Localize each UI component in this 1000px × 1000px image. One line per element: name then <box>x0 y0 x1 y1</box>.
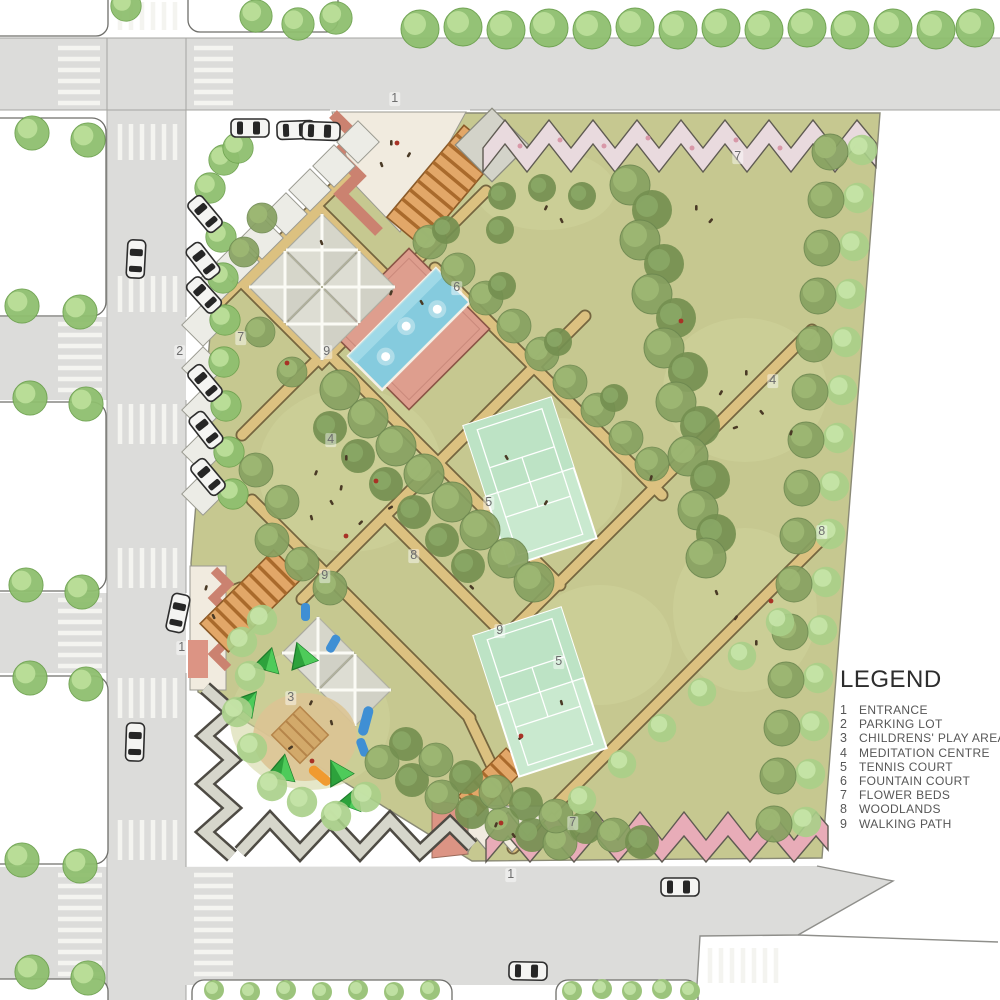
marker-entrance-south: 1 <box>505 868 516 882</box>
legend-item-parking-lot: 2 PARKING LOT <box>840 717 1000 731</box>
legend-item-play-area: 3 CHILDRENS' PLAY AREA <box>840 731 1000 745</box>
marker-meditation-west: 4 <box>325 433 336 447</box>
site-plan: 1 2 7 9 6 4 4 7 8 8 5 9 5 9 3 1 7 1 LEGE… <box>0 0 1000 1000</box>
site-plan-canvas <box>0 0 1000 1000</box>
legend-title: LEGEND <box>840 666 1000 694</box>
marker-flower-beds-north: 7 <box>732 150 743 164</box>
marker-play-area: 3 <box>285 691 296 705</box>
marker-walking-path-3: 9 <box>319 569 330 583</box>
legend-item-walking-path: 9 WALKING PATH <box>840 817 1000 831</box>
marker-tennis-court-2: 5 <box>553 655 564 669</box>
marker-flower-beds-south: 7 <box>567 816 578 830</box>
marker-entrance-west: 1 <box>176 641 187 655</box>
marker-flower-beds-west: 7 <box>235 331 246 345</box>
legend-item-meditation-centre: 4 MEDITATION CENTRE <box>840 746 1000 760</box>
marker-woodlands-centre: 8 <box>408 549 419 563</box>
legend-item-flower-beds: 7 FLOWER BEDS <box>840 788 1000 802</box>
legend-item-tennis-court: 5 TENNIS COURT <box>840 760 1000 774</box>
marker-fountain-court: 6 <box>451 281 462 295</box>
marker-tennis-court-1: 5 <box>483 496 494 510</box>
marker-walking-path-2: 9 <box>494 624 505 638</box>
marker-woodlands-east: 8 <box>816 525 827 539</box>
legend-item-woodlands: 8 WOODLANDS <box>840 802 1000 816</box>
park <box>182 108 880 862</box>
legend-item-fountain-court: 6 FOUNTAIN COURT <box>840 774 1000 788</box>
marker-meditation-east: 4 <box>767 374 778 388</box>
marker-entrance-north: 1 <box>389 92 400 106</box>
marker-parking-lot: 2 <box>174 345 185 359</box>
legend: LEGEND 1 ENTRANCE 2 PARKING LOT 3 CHILDR… <box>840 666 1000 831</box>
legend-item-entrance: 1 ENTRANCE <box>840 703 1000 717</box>
marker-walking-path-1: 9 <box>321 345 332 359</box>
